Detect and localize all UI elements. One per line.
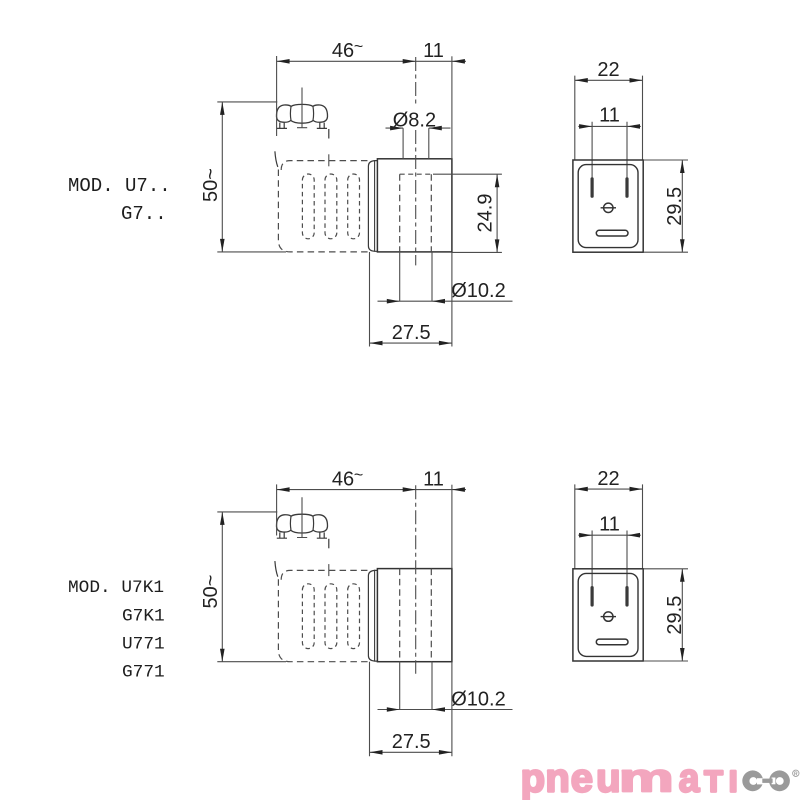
svg-text:G7K1: G7K1 — [122, 607, 165, 627]
svg-text:46: 46 — [332, 40, 354, 62]
svg-text:R: R — [794, 771, 798, 777]
svg-text:Ø10.2: Ø10.2 — [451, 688, 505, 710]
svg-text:MOD. U7K1: MOD. U7K1 — [68, 578, 164, 598]
svg-text:G771: G771 — [122, 663, 165, 683]
svg-text:24.9: 24.9 — [475, 194, 497, 233]
svg-text:Ø10.2: Ø10.2 — [451, 280, 505, 302]
svg-text:G7..: G7.. — [121, 203, 167, 225]
svg-text:a: a — [679, 756, 700, 800]
svg-text:TI: TI — [704, 766, 737, 799]
svg-text:~: ~ — [354, 39, 363, 56]
svg-text:46: 46 — [332, 468, 354, 490]
svg-text:11: 11 — [423, 40, 444, 62]
svg-text:11: 11 — [423, 468, 444, 490]
svg-text:U771: U771 — [122, 635, 165, 655]
svg-text:50~: 50~ — [200, 168, 222, 202]
svg-text:MOD. U7..: MOD. U7.. — [68, 175, 171, 197]
svg-text:50~: 50~ — [200, 575, 222, 609]
svg-text:27.5: 27.5 — [392, 322, 431, 344]
svg-text:27.5: 27.5 — [392, 731, 431, 753]
svg-text:pneu: pneu — [521, 757, 621, 800]
svg-text:~: ~ — [354, 467, 363, 484]
svg-text:Ø8.2: Ø8.2 — [393, 110, 436, 132]
svg-text:m: m — [619, 756, 674, 800]
